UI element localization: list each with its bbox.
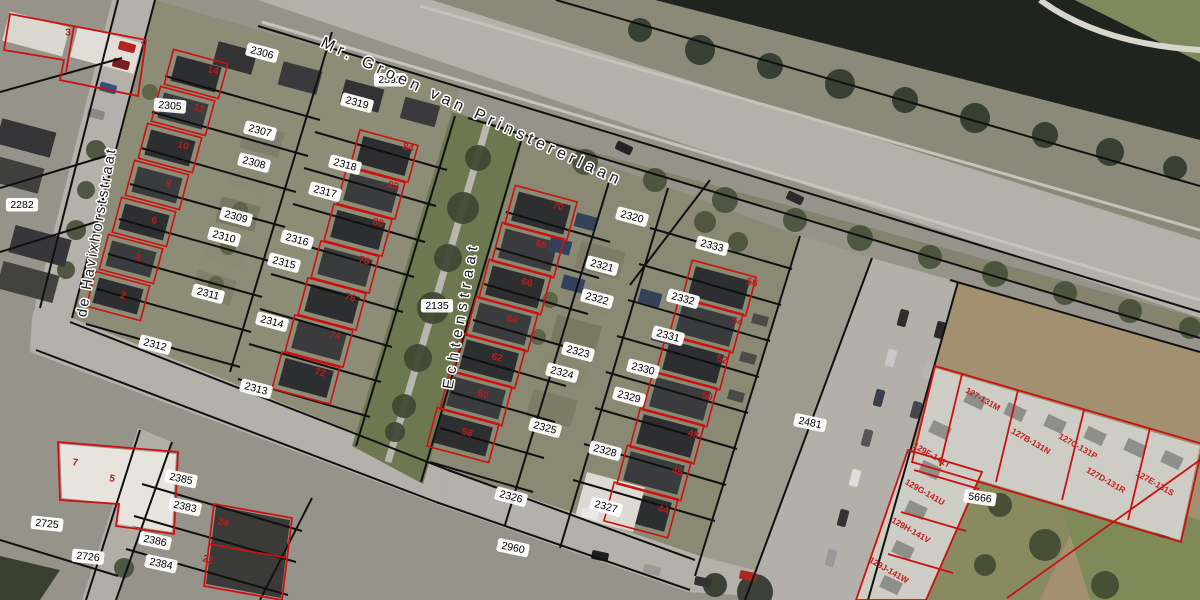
house-number-text: 1 [140, 41, 146, 52]
tree-canopy [404, 344, 432, 372]
parcel-label-text: 2725 [35, 517, 60, 531]
tree-canopy [974, 554, 996, 576]
parcel-label-2282: 2282 [6, 198, 38, 212]
parcel-label-text: 2135 [425, 300, 449, 312]
tree-canopy [465, 145, 491, 171]
tree-canopy [783, 208, 807, 232]
parcel-label-2135: 2135 [421, 299, 453, 313]
house-number-3: 3 [65, 28, 71, 39]
tree-canopy [712, 187, 738, 213]
house-number-1: 1 [140, 41, 146, 52]
tree-canopy [1029, 529, 1061, 561]
tree-canopy [728, 232, 748, 252]
tree-canopy [694, 211, 716, 233]
house-number-text: 3 [65, 28, 71, 39]
tree-canopy [392, 394, 416, 418]
tree-canopy [825, 69, 855, 99]
parcel-label-text: 2282 [10, 199, 34, 211]
tree-canopy [1091, 571, 1119, 599]
parcel-label-text: 2726 [76, 550, 101, 564]
tree-canopy [142, 84, 158, 100]
tree-canopy [77, 181, 95, 199]
parcel-label-text: 2305 [158, 99, 182, 113]
tree-canopy [1053, 281, 1077, 305]
parcel-label-2305: 2305 [153, 98, 186, 114]
tree-canopy [447, 192, 479, 224]
tree-canopy [434, 244, 462, 272]
tree-canopy [385, 422, 405, 442]
tree-canopy [757, 53, 783, 79]
cadastral-map[interactable]: 2592230623052282230723082309231023112312… [0, 0, 1200, 600]
cadastral-map-viewport[interactable]: 2592230623052282230723082309231023112312… [0, 0, 1200, 600]
